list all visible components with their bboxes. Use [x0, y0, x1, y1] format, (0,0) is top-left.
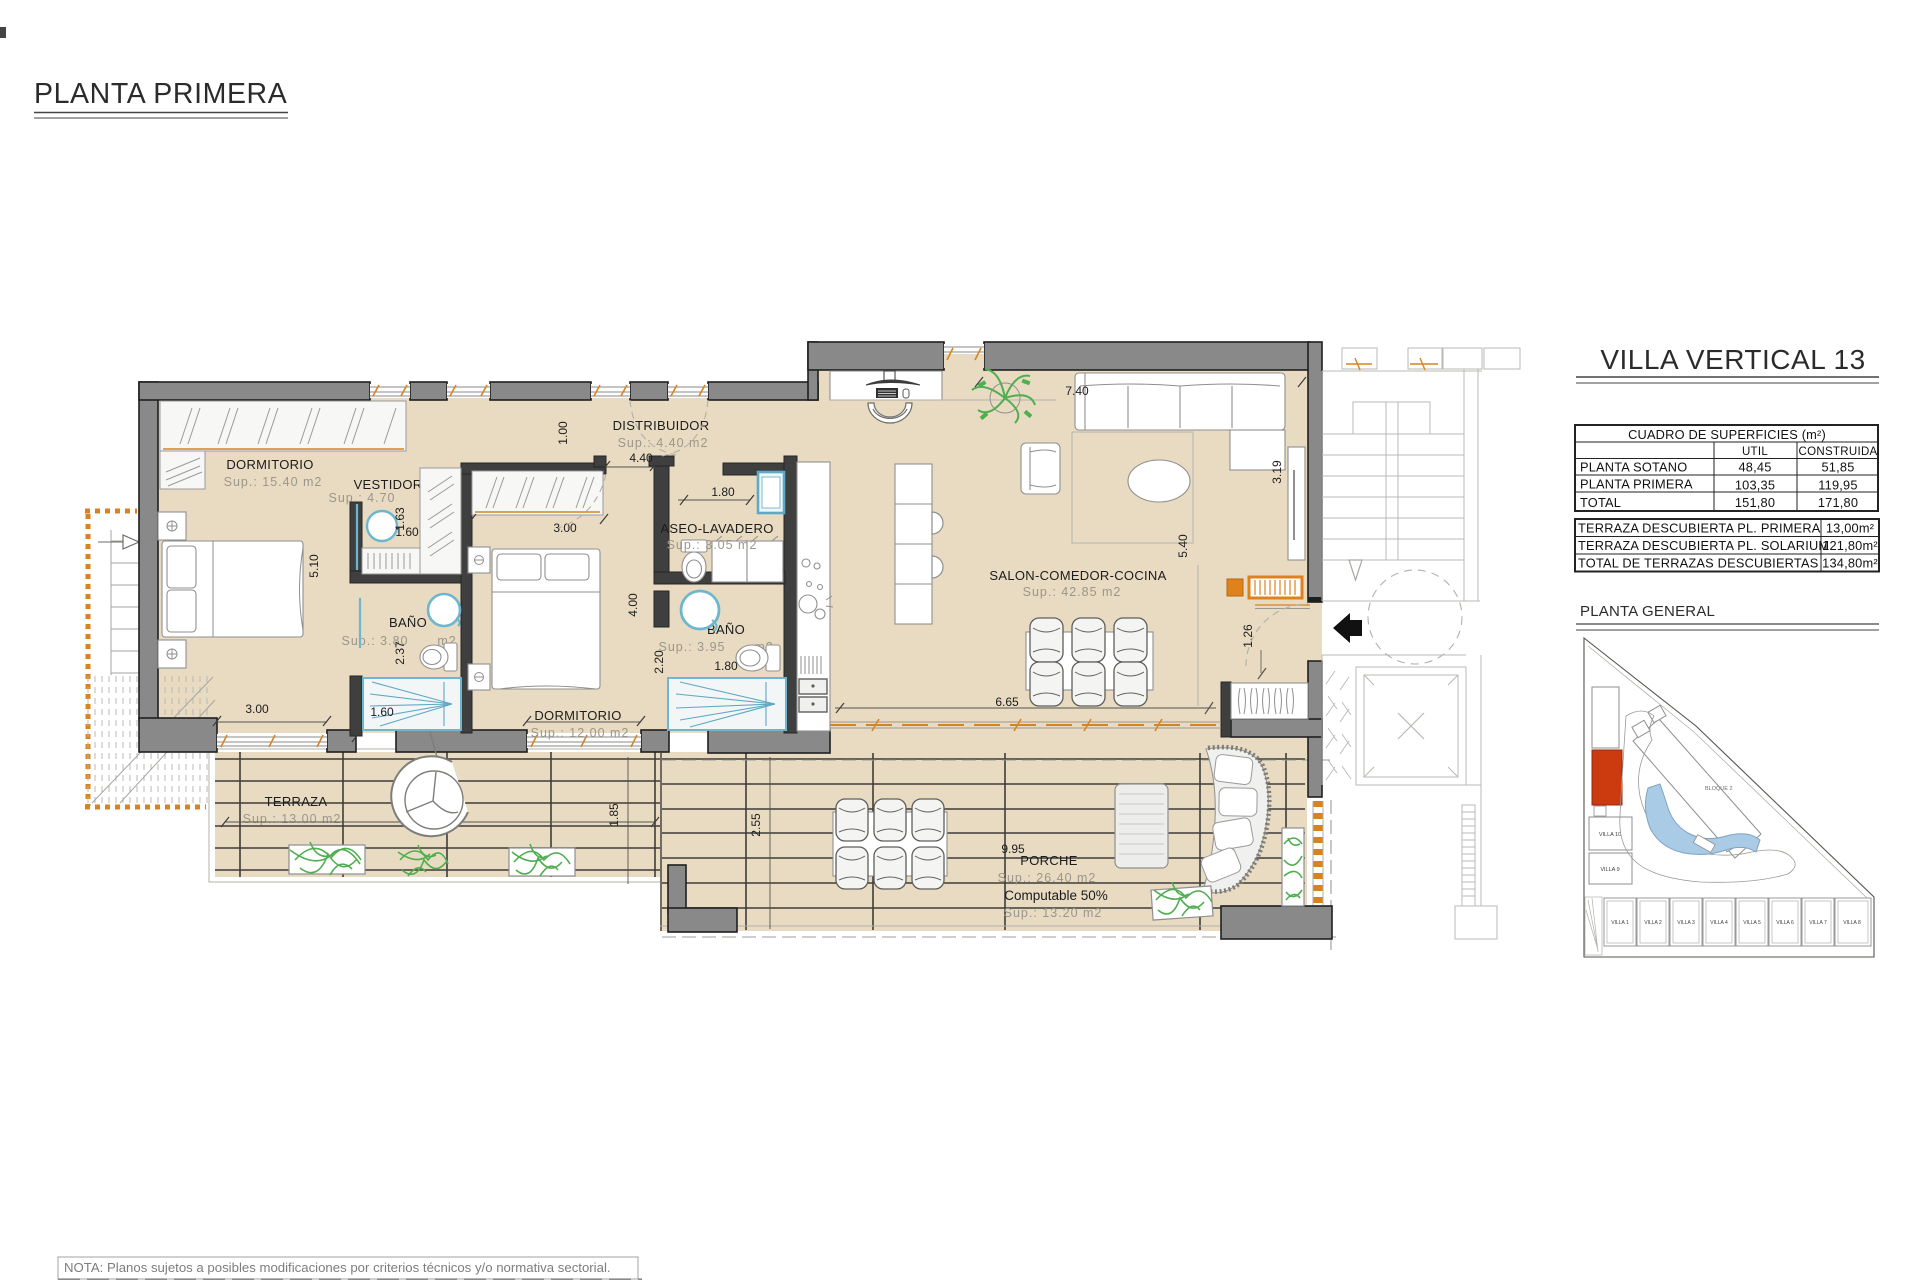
svg-text:51,85: 51,85: [1821, 460, 1854, 475]
svg-text:TERRAZA: TERRAZA: [265, 794, 328, 809]
svg-text:VILLA 4: VILLA 4: [1710, 920, 1728, 926]
svg-text:7.40: 7.40: [1065, 384, 1089, 398]
svg-text:134,80m²: 134,80m²: [1822, 556, 1878, 571]
svg-text:DORMITORIO: DORMITORIO: [534, 708, 621, 723]
svg-text:VILLA 9: VILLA 9: [1600, 867, 1619, 873]
svg-text:1.60: 1.60: [370, 705, 394, 719]
svg-text:VILLA VERTICAL 13: VILLA VERTICAL 13: [1600, 344, 1865, 375]
svg-text:VILLA 7: VILLA 7: [1809, 920, 1827, 926]
svg-text:CUADRO DE SUPERFICIES (m²): CUADRO DE SUPERFICIES (m²): [1628, 427, 1826, 442]
svg-text:5.40: 5.40: [1176, 534, 1190, 558]
svg-text:TERRAZA DESCUBIERTA PL. SOLARI: TERRAZA DESCUBIERTA PL. SOLARIUM: [1578, 538, 1829, 553]
svg-text:VILLA 8: VILLA 8: [1843, 920, 1861, 926]
svg-text:13,00m²: 13,00m²: [1826, 521, 1875, 536]
svg-text:Sup.: 42.85 m2: Sup.: 42.85 m2: [1023, 585, 1122, 599]
svg-text:1.00: 1.00: [556, 421, 570, 445]
svg-text:1.85: 1.85: [607, 803, 621, 827]
svg-text:5.10: 5.10: [307, 554, 321, 578]
svg-text:121,80m²: 121,80m²: [1822, 538, 1878, 553]
svg-text:3.00: 3.00: [245, 702, 269, 716]
svg-text:119,95: 119,95: [1818, 478, 1857, 493]
svg-text:2.20: 2.20: [652, 650, 666, 674]
svg-text:PLANTA PRIMERA: PLANTA PRIMERA: [34, 78, 287, 110]
svg-text:1.80: 1.80: [714, 659, 738, 673]
svg-text:Sup.: 26.40 m2: Sup.: 26.40 m2: [998, 871, 1097, 885]
svg-text:UTIL: UTIL: [1742, 446, 1768, 458]
svg-text:171,80: 171,80: [1818, 495, 1858, 510]
svg-text:2.55: 2.55: [749, 813, 763, 837]
svg-text:DORMITORIO: DORMITORIO: [226, 457, 313, 472]
svg-text:TOTAL: TOTAL: [1580, 495, 1621, 510]
svg-text:9.95: 9.95: [1001, 842, 1025, 856]
svg-text:1.26: 1.26: [1241, 624, 1255, 648]
svg-text:4.00: 4.00: [626, 593, 640, 617]
svg-text:BAÑO: BAÑO: [389, 615, 427, 630]
svg-text:151,80: 151,80: [1735, 495, 1775, 510]
svg-text:Sup.: 12.00 m2: Sup.: 12.00 m2: [531, 726, 630, 740]
svg-text:3.19: 3.19: [1270, 460, 1284, 484]
svg-text:CONSTRUIDA: CONSTRUIDA: [1798, 446, 1877, 458]
svg-text:TERRAZA DESCUBIERTA PL. PRIMER: TERRAZA DESCUBIERTA PL. PRIMERA: [1578, 521, 1821, 536]
svg-text:NOTA: Planos sujetos a posible: NOTA: Planos sujetos a posibles modifica…: [64, 1260, 611, 1275]
svg-text:VILLA 10: VILLA 10: [1599, 832, 1621, 838]
svg-text:1.80: 1.80: [711, 485, 735, 499]
svg-text:3.00: 3.00: [553, 521, 577, 535]
svg-text:VILLA 3: VILLA 3: [1677, 920, 1695, 926]
svg-text:2.37: 2.37: [393, 641, 407, 665]
svg-text:Sup.: 3.05 m2: Sup.: 3.05 m2: [667, 538, 758, 552]
svg-text:VILLA 2: VILLA 2: [1644, 920, 1662, 926]
svg-text:PLANTA SOTANO: PLANTA SOTANO: [1580, 460, 1687, 475]
svg-text:VILLA 1: VILLA 1: [1611, 920, 1629, 926]
svg-text:Sup.: 13.20 m2: Sup.: 13.20 m2: [1004, 906, 1103, 920]
svg-text:SALON-COMEDOR-COCINA: SALON-COMEDOR-COCINA: [989, 568, 1166, 583]
svg-text:4.40: 4.40: [629, 451, 653, 465]
svg-text:48,45: 48,45: [1738, 460, 1771, 475]
svg-text:Sup.: 15.40 m2: Sup.: 15.40 m2: [224, 475, 323, 489]
svg-text:ASEO-LAVADERO: ASEO-LAVADERO: [660, 521, 773, 536]
svg-text:6.65: 6.65: [995, 695, 1019, 709]
svg-text:PORCHE: PORCHE: [1020, 853, 1077, 868]
svg-text:PLANTA GENERAL: PLANTA GENERAL: [1580, 603, 1715, 620]
svg-text:BLOQUE 2: BLOQUE 2: [1705, 786, 1733, 792]
svg-text:VILLA 5: VILLA 5: [1743, 920, 1761, 926]
svg-text:Sup.: 13.00 m2: Sup.: 13.00 m2: [243, 812, 342, 826]
svg-text:TOTAL DE TERRAZAS DESCUBIERTAS: TOTAL DE TERRAZAS DESCUBIERTAS: [1578, 556, 1818, 571]
svg-text:Computable 50%: Computable 50%: [1004, 888, 1108, 903]
svg-text:DISTRIBUIDOR: DISTRIBUIDOR: [613, 418, 710, 433]
svg-text:VILLA 6: VILLA 6: [1776, 920, 1794, 926]
svg-text:BLOQUE 1: BLOQUE 1: [1594, 753, 1617, 758]
svg-text:1.60: 1.60: [395, 525, 419, 539]
svg-text:PLANTA PRIMERA: PLANTA PRIMERA: [1580, 477, 1693, 492]
svg-text:Sup.: 4.70: Sup.: 4.70: [329, 491, 396, 505]
svg-text:VESTIDOR: VESTIDOR: [354, 477, 423, 492]
svg-text:103,35: 103,35: [1735, 478, 1775, 493]
svg-text:Sup.: 3.95: Sup.: 3.95: [659, 640, 726, 654]
